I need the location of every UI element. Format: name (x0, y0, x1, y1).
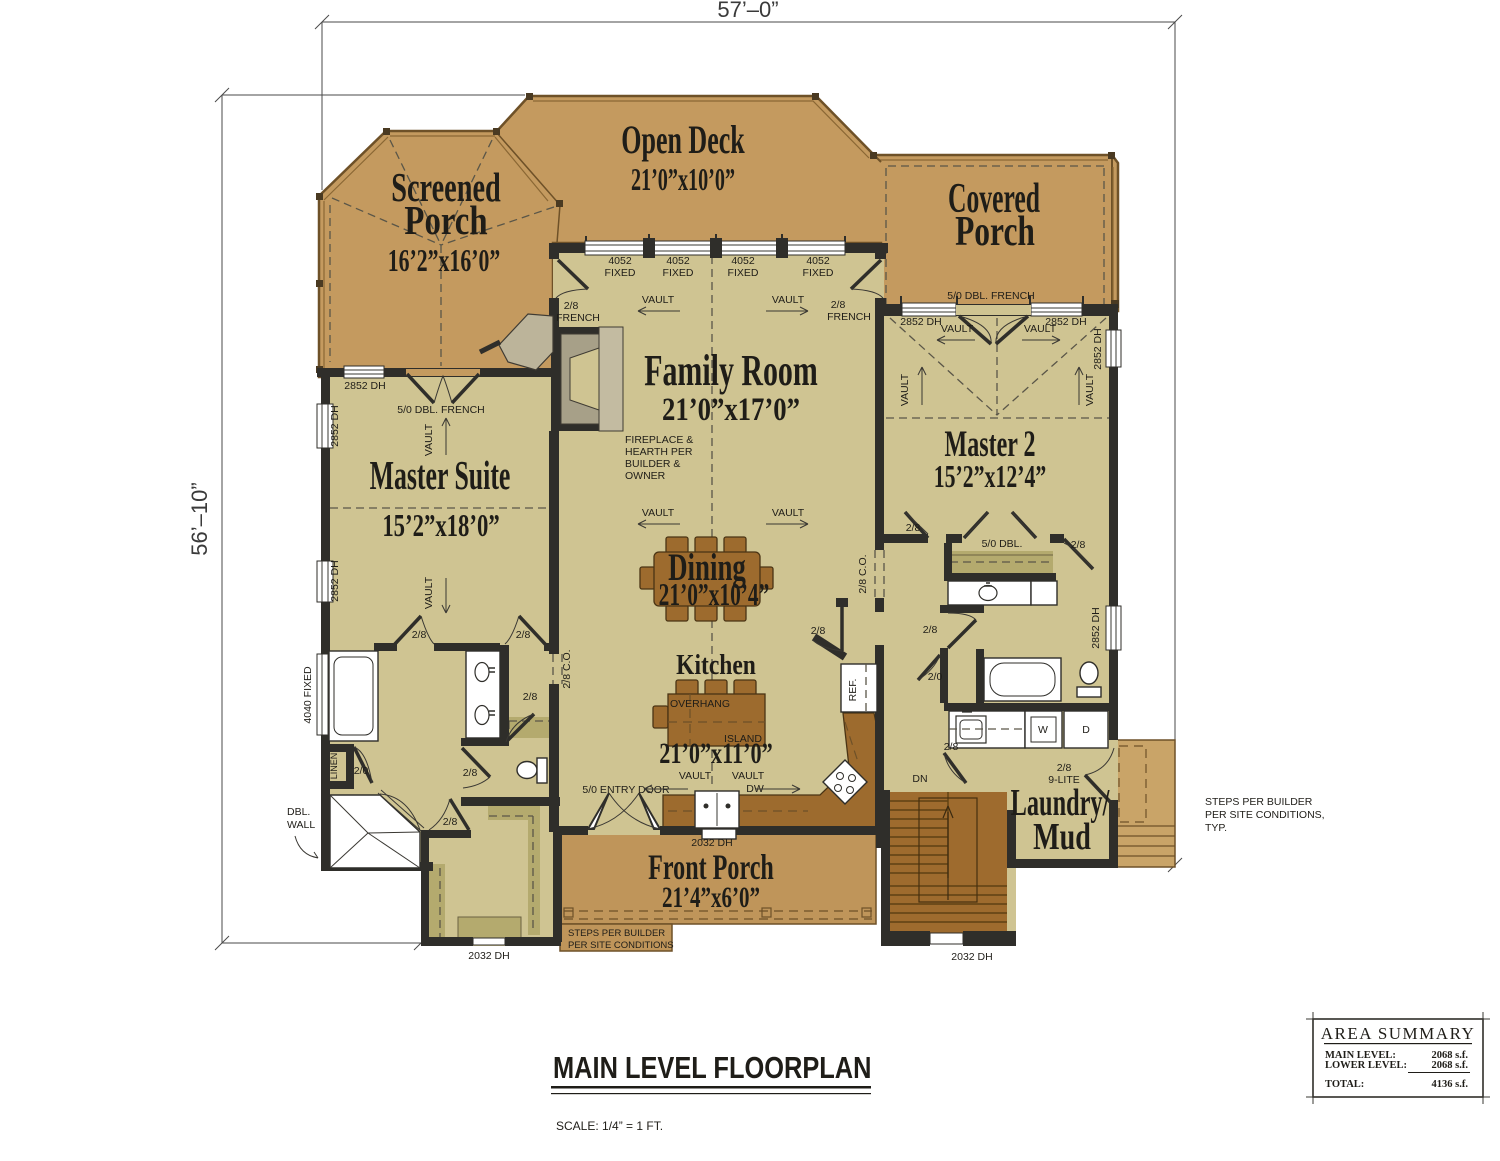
svg-text:Open Deck: Open Deck (621, 119, 745, 163)
svg-text:2/8: 2/8 (1071, 539, 1086, 551)
svg-text:Mud: Mud (1033, 816, 1091, 858)
svg-text:Kitchen: Kitchen (676, 649, 756, 680)
svg-text:FIREPLACE &: FIREPLACE & (625, 434, 693, 446)
svg-text:4052: 4052 (806, 255, 830, 267)
svg-text:WALL: WALL (287, 819, 315, 831)
svg-text:2068 s.f.: 2068 s.f. (1432, 1060, 1469, 1071)
svg-text:TOTAL:: TOTAL: (1325, 1079, 1364, 1090)
svg-text:SCALE: 1/4” = 1 FT.: SCALE: 1/4” = 1 FT. (556, 1119, 663, 1133)
svg-text:2/8: 2/8 (944, 741, 959, 753)
svg-text:21’4”x6’0”: 21’4”x6’0” (662, 880, 760, 914)
svg-text:MAIN LEVEL FLOORPLAN: MAIN LEVEL FLOORPLAN (553, 1051, 871, 1086)
svg-text:TYP.: TYP. (1205, 822, 1227, 834)
svg-text:2852 DH: 2852 DH (1090, 607, 1102, 648)
svg-text:15’2”x12’4”: 15’2”x12’4” (934, 459, 1046, 494)
svg-text:2/0: 2/0 (928, 671, 943, 683)
svg-text:VAULT: VAULT (1024, 323, 1057, 335)
svg-text:4052: 4052 (731, 255, 755, 267)
svg-text:2852 DH: 2852 DH (329, 405, 341, 446)
svg-text:2852 DH: 2852 DH (344, 380, 385, 392)
svg-text:4136 s.f.: 4136 s.f. (1432, 1079, 1469, 1090)
svg-text:STEPS PER BUILDER: STEPS PER BUILDER (568, 928, 665, 939)
svg-text:2/8: 2/8 (831, 299, 846, 311)
svg-text:VAULT: VAULT (899, 373, 911, 406)
svg-text:FIXED: FIXED (605, 267, 636, 279)
svg-text:2/8: 2/8 (443, 816, 458, 828)
svg-text:AREA SUMMARY: AREA SUMMARY (1321, 1024, 1476, 1043)
svg-text:VAULT: VAULT (941, 323, 974, 335)
svg-text:OVERHANG: OVERHANG (670, 698, 730, 710)
svg-text:2/8 C.O.: 2/8 C.O. (857, 554, 869, 593)
svg-text:21’0”x10’0”: 21’0”x10’0” (631, 161, 735, 197)
svg-text:2852 DH: 2852 DH (1092, 328, 1104, 369)
svg-text:W: W (1038, 724, 1048, 736)
svg-text:21’0”x10’4”: 21’0”x10’4” (659, 577, 770, 612)
svg-text:2/8: 2/8 (811, 625, 826, 637)
svg-text:57’–0”: 57’–0” (717, 0, 778, 22)
svg-text:2032 DH: 2032 DH (951, 951, 992, 963)
svg-text:Porch: Porch (955, 209, 1035, 255)
svg-text:DBL.: DBL. (287, 806, 310, 818)
svg-text:REF.: REF. (847, 679, 859, 702)
svg-text:4040 FIXED: 4040 FIXED (302, 666, 314, 724)
svg-text:2/8: 2/8 (1057, 762, 1072, 774)
svg-text:VAULT: VAULT (642, 294, 675, 306)
svg-text:Master Suite: Master Suite (370, 453, 511, 498)
svg-text:5/0 DBL. FRENCH: 5/0 DBL. FRENCH (397, 404, 485, 416)
svg-text:Porch: Porch (404, 199, 487, 244)
svg-text:PER SITE CONDITIONS,: PER SITE CONDITIONS, (1205, 809, 1325, 821)
svg-text:4052: 4052 (666, 255, 690, 267)
svg-text:2/8: 2/8 (516, 629, 531, 641)
svg-text:VAULT: VAULT (642, 507, 675, 519)
svg-text:56’–10”: 56’–10” (187, 482, 212, 555)
svg-text:5/0 ENTRY DOOR: 5/0 ENTRY DOOR (582, 784, 670, 796)
svg-text:VAULT: VAULT (732, 770, 765, 782)
svg-text:D: D (1082, 724, 1090, 736)
svg-text:4052: 4052 (608, 255, 632, 267)
svg-text:VAULT: VAULT (772, 294, 805, 306)
svg-text:FIXED: FIXED (663, 267, 694, 279)
svg-text:DN: DN (912, 773, 927, 785)
svg-text:FIXED: FIXED (728, 267, 759, 279)
svg-text:5/0 DBL.: 5/0 DBL. (982, 538, 1023, 550)
svg-text:ISLAND: ISLAND (724, 733, 762, 745)
svg-text:2/8: 2/8 (906, 522, 921, 534)
svg-text:2852 DH: 2852 DH (900, 316, 941, 328)
svg-text:STEPS PER BUILDER: STEPS PER BUILDER (1205, 796, 1313, 808)
svg-text:9-LITE: 9-LITE (1048, 774, 1080, 786)
svg-text:VAULT: VAULT (423, 423, 435, 456)
svg-text:FIXED: FIXED (803, 267, 834, 279)
svg-text:21’0”x17’0”: 21’0”x17’0” (662, 391, 800, 427)
svg-text:Family Room: Family Room (644, 346, 818, 395)
svg-text:15’2”x18’0”: 15’2”x18’0” (382, 508, 499, 544)
svg-text:2/0: 2/0 (354, 765, 369, 777)
svg-text:VAULT: VAULT (1084, 373, 1096, 406)
svg-text:VAULT: VAULT (423, 576, 435, 609)
svg-text:2032 DH: 2032 DH (691, 837, 732, 849)
svg-text:VAULT: VAULT (679, 770, 712, 782)
svg-text:2/8: 2/8 (463, 767, 478, 779)
svg-text:2852 DH: 2852 DH (329, 560, 341, 601)
svg-text:2/8 C.O.: 2/8 C.O. (561, 649, 573, 688)
svg-text:LINEN: LINEN (329, 753, 339, 780)
svg-text:HEARTH PER: HEARTH PER (625, 446, 693, 458)
svg-text:5/0 DBL. FRENCH: 5/0 DBL. FRENCH (947, 290, 1035, 302)
svg-text:PER SITE CONDITIONS: PER SITE CONDITIONS (568, 940, 674, 951)
svg-text:FRENCH: FRENCH (827, 311, 871, 323)
svg-text:BUILDER &: BUILDER & (625, 458, 680, 470)
svg-text:OWNER: OWNER (625, 470, 666, 482)
svg-text:16’2”x16’0”: 16’2”x16’0” (388, 243, 500, 278)
svg-text:2/8: 2/8 (412, 629, 427, 641)
svg-text:FRENCH: FRENCH (556, 312, 600, 324)
svg-text:2/8: 2/8 (523, 691, 538, 703)
svg-text:VAULT: VAULT (772, 507, 805, 519)
svg-text:2032 DH: 2032 DH (468, 950, 509, 962)
svg-text:2/8: 2/8 (564, 300, 579, 312)
svg-text:2/8: 2/8 (923, 624, 938, 636)
svg-text:LOWER LEVEL:: LOWER LEVEL: (1325, 1060, 1407, 1071)
